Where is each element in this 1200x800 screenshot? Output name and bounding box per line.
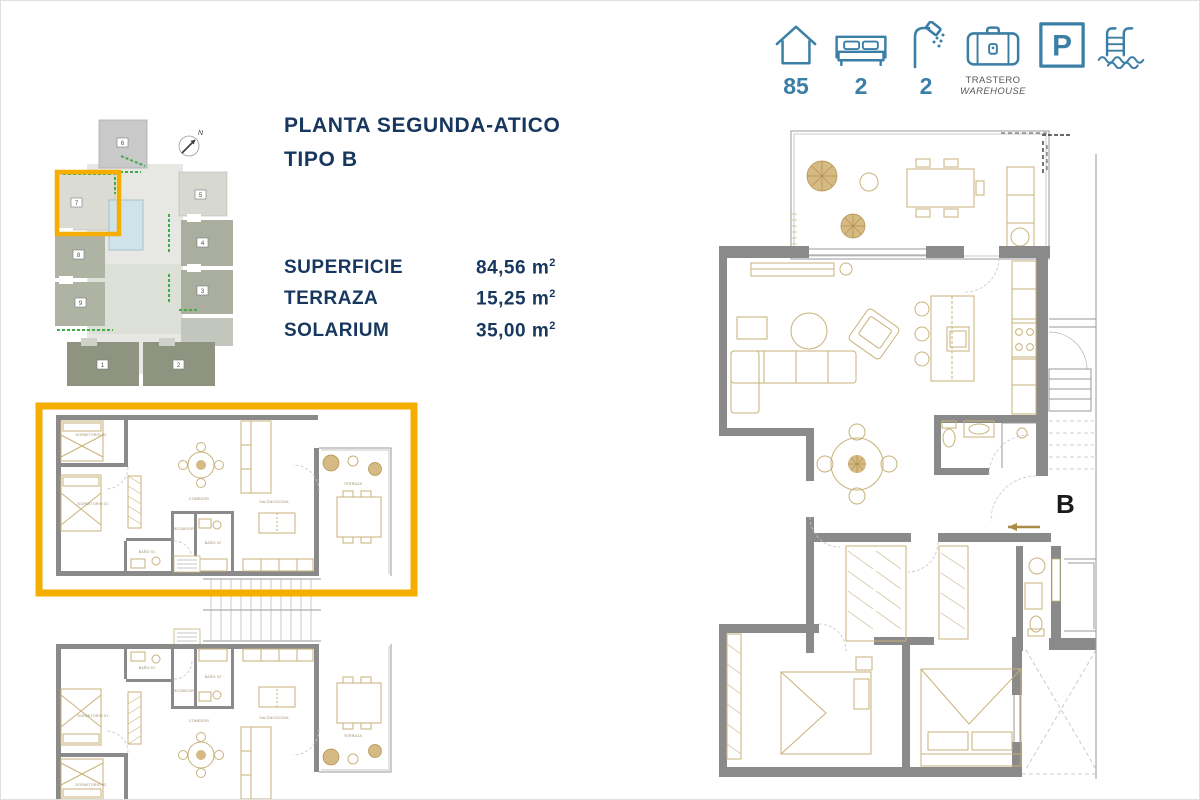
- entry-arrow: [991, 476, 1040, 531]
- room-labels-bottom: DORMITORIO 02 DORMITORIO 01 BAÑO 01 RECI…: [76, 665, 363, 787]
- hall-door-arc: [810, 517, 840, 547]
- parking-stat: P: [1031, 15, 1093, 69]
- bathroom-1: [942, 421, 1036, 475]
- unit-letter-label: B: [1056, 489, 1075, 519]
- site-key-plan: 6 5 4 3 7 8 9 1 2 N: [29, 114, 241, 392]
- terrace-door-arc: [965, 258, 999, 292]
- svg-text:TERRAZA: TERRAZA: [344, 734, 363, 738]
- floor-plan-sheet: 85 2: [0, 0, 1200, 800]
- page-title: PLANTA SEGUNDA-ATICO TIPO B: [284, 109, 560, 177]
- site-block-7-area: [59, 174, 115, 230]
- staircase: B: [1022, 135, 1096, 779]
- bedroom-1: [727, 624, 872, 759]
- amenities-icon-bar: 85 2: [767, 15, 1149, 100]
- bedrooms-stat: 2: [825, 15, 897, 100]
- svg-text:RECIBIDOR: RECIBIDOR: [172, 527, 194, 531]
- svg-text:DORMITORIO 01: DORMITORIO 01: [78, 714, 109, 718]
- title-line-1: PLANTA SEGUNDA-ATICO: [284, 109, 560, 143]
- pool-stat: [1093, 15, 1149, 69]
- svg-text:DORMITORIO 02: DORMITORIO 02: [76, 783, 107, 787]
- svg-text:BAÑO 02: BAÑO 02: [205, 674, 222, 679]
- svg-text:SALÓN/COCINA: SALÓN/COCINA: [259, 499, 289, 504]
- bathrooms-count: 2: [920, 73, 933, 100]
- walls: [719, 246, 1096, 777]
- house-stat: 85: [767, 15, 825, 100]
- dining-nook: [817, 424, 897, 504]
- bathrooms-stat: 2: [897, 15, 955, 100]
- svg-text:COMEDOR: COMEDOR: [189, 719, 209, 723]
- shower-icon: [905, 15, 947, 69]
- room-labels-top: DORMITORIO 02 DORMITORIO 01 BAÑO 01 RECI…: [76, 433, 363, 554]
- surface-table: SUPERFICIE 84,56 m2 TERRAZA 15,25 m2 SOL…: [284, 257, 584, 351]
- warehouse-caption: TRASTERO WAREHOUSE: [960, 75, 1026, 97]
- stair-core: [174, 556, 321, 645]
- site-pool: [109, 200, 143, 250]
- svg-text:COMEDOR: COMEDOR: [189, 497, 209, 501]
- svg-text:TERRAZA: TERRAZA: [344, 482, 363, 486]
- unit-plan-bottom: DORMITORIO 02 DORMITORIO 01 BAÑO 01 RECI…: [56, 644, 391, 800]
- svg-text:RECIBIDOR: RECIBIDOR: [172, 689, 194, 693]
- svg-text:BAÑO 01: BAÑO 01: [139, 665, 156, 670]
- svg-text:SALÓN/COCINA: SALÓN/COCINA: [259, 715, 289, 720]
- north-arrow: N: [179, 130, 204, 156]
- bedrooms-count: 2: [855, 73, 868, 100]
- svg-text:DORMITORIO 01: DORMITORIO 01: [78, 502, 109, 506]
- unit-plan-top: DORMITORIO 02 DORMITORIO 01 BAÑO 01 RECI…: [56, 415, 391, 576]
- spec-row-superficie: SUPERFICIE 84,56 m2: [284, 257, 584, 279]
- house-icon: [773, 15, 819, 69]
- pool-ladder-icon: [1095, 15, 1147, 69]
- title-line-2: TIPO B: [284, 143, 560, 177]
- living-room: [731, 263, 900, 413]
- spec-row-terraza: TERRAZA 15,25 m2: [284, 288, 584, 310]
- kitchen: [915, 261, 1036, 414]
- storage-stat: TRASTERO WAREHOUSE: [955, 15, 1031, 97]
- bed-icon: [831, 15, 891, 69]
- wardrobes: [846, 546, 968, 641]
- svg-text:N: N: [198, 130, 204, 137]
- svg-text:BAÑO 01: BAÑO 01: [139, 549, 156, 554]
- svg-text:DORMITORIO 02: DORMITORIO 02: [76, 433, 107, 437]
- house-count: 85: [783, 73, 809, 100]
- key-floor-plan: DORMITORIO 02 DORMITORIO 01 BAÑO 01 RECI…: [31, 401, 421, 800]
- parking-icon: P: [1038, 15, 1086, 69]
- svg-text:P: P: [1052, 30, 1072, 63]
- detail-floor-plan: B: [706, 119, 1181, 794]
- warehouse-trunk-icon: [964, 15, 1022, 69]
- svg-text:BAÑO 02: BAÑO 02: [205, 540, 222, 545]
- spec-row-solarium: SOLARIUM 35,00 m2: [284, 320, 584, 342]
- bedroom-2: [908, 542, 1021, 766]
